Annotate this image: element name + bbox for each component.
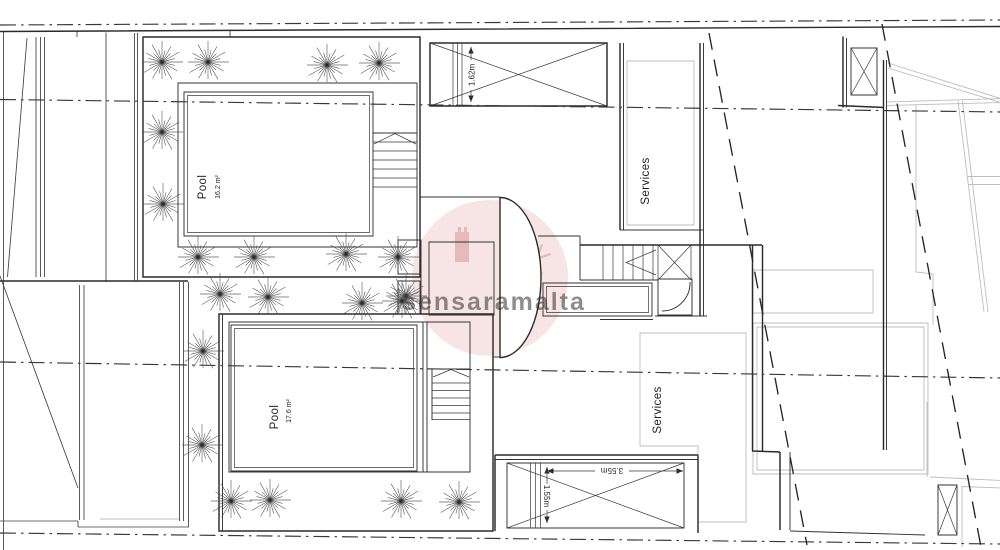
tree-icon [234,236,275,274]
floor-plan-drawing: sensaramalta Pool [0,0,1000,550]
pool-upper-area: 16.2 m² [215,174,222,198]
tree-icon [359,42,400,80]
tree-icon [248,276,289,314]
dimension-terrace-width: 3.55m [601,466,624,475]
tree-icon [142,111,183,149]
tree-icon [439,481,480,519]
tree-icon [142,41,183,79]
watermark-circle [412,200,568,356]
watermark [412,200,568,356]
pool-lower-label: Pool [269,405,281,430]
pool-lower-area: 17.6 m² [286,398,293,422]
pool-upper-label: Pool [197,175,209,200]
tree-icon [188,41,229,79]
tree-icon [326,233,367,271]
boundary-dashed-lines [709,24,981,547]
tree-icon [211,480,252,518]
tree-icon [200,273,241,311]
left-neighbor-lines [0,31,230,550]
tree-icon [307,44,348,82]
dimension-terrace-depth: 1.55m [542,485,551,508]
floor-plan-page: sensaramalta Pool [0,0,1000,550]
services-lower-label: Services [652,386,664,433]
services-upper-label: Services [640,157,652,204]
tree-icon [183,330,224,368]
dimension-shaft-height: 1.62m [468,64,477,87]
tree-icon [381,480,422,518]
tree-icon [178,236,219,274]
tree-icon [250,479,291,517]
